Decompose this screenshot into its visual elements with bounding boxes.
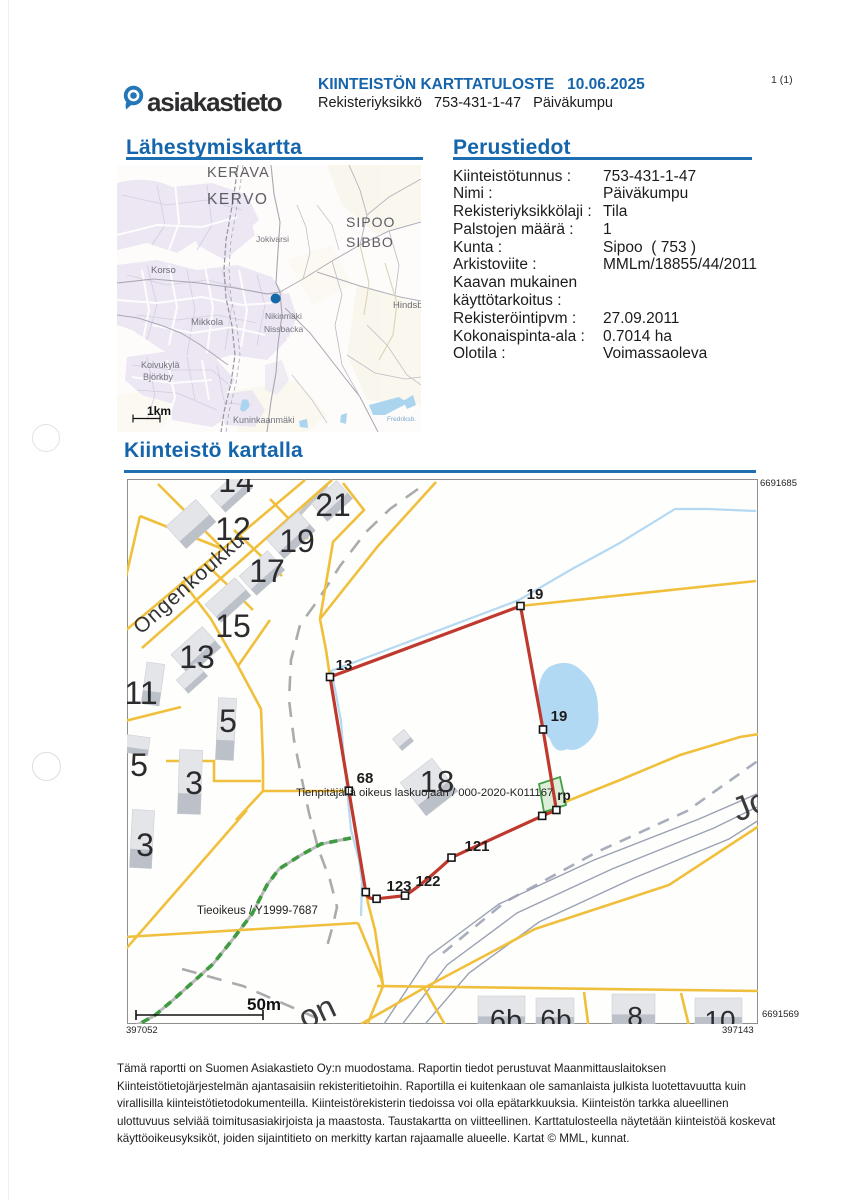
svg-text:3: 3: [136, 827, 154, 863]
svg-text:Mikkola: Mikkola: [191, 317, 224, 328]
svg-text:13: 13: [179, 639, 215, 675]
svg-text:5: 5: [219, 703, 237, 739]
svg-text:Tieoikeus / Y1999-7687: Tieoikeus / Y1999-7687: [197, 905, 318, 917]
svg-text:11: 11: [127, 675, 158, 711]
svg-text:Tienpitäjällä oikeus laskuojaa: Tienpitäjällä oikeus laskuojaan / 000-20…: [296, 787, 553, 799]
svg-text:Korso: Korso: [151, 265, 176, 276]
svg-text:SIBBO: SIBBO: [346, 234, 394, 250]
svg-text:3: 3: [185, 765, 203, 801]
svg-text:50m: 50m: [247, 995, 281, 1014]
svg-text:19: 19: [551, 708, 568, 725]
svg-text:Kuninkaanmäki: Kuninkaanmäki: [233, 415, 295, 425]
svg-text:5: 5: [130, 747, 148, 783]
svg-text:10: 10: [704, 1005, 735, 1024]
svg-text:Jokivarsi: Jokivarsi: [256, 234, 289, 244]
svg-text:15: 15: [215, 608, 251, 644]
svg-text:Nissbacka: Nissbacka: [264, 324, 303, 334]
svg-text:KERVO: KERVO: [207, 191, 269, 208]
svg-text:13: 13: [336, 657, 353, 674]
svg-text:rp: rp: [557, 788, 571, 803]
svg-text:21: 21: [315, 487, 351, 523]
svg-text:SIPOO: SIPOO: [346, 214, 395, 230]
svg-text:8: 8: [627, 1001, 643, 1024]
svg-text:Nikinmäki: Nikinmäki: [265, 311, 302, 321]
svg-text:6b: 6b: [490, 1005, 522, 1024]
svg-text:17: 17: [249, 553, 285, 589]
svg-text:122: 122: [415, 873, 440, 890]
svg-text:Hindsby: Hindsby: [393, 300, 421, 311]
svg-text:Fredriksb.: Fredriksb.: [387, 416, 416, 423]
svg-text:123: 123: [386, 878, 411, 895]
svg-text:68: 68: [357, 770, 374, 787]
svg-text:6b: 6b: [540, 1004, 571, 1024]
svg-text:19: 19: [527, 586, 544, 603]
svg-text:Björkby: Björkby: [143, 372, 174, 382]
svg-text:KERAVA: KERAVA: [207, 165, 270, 181]
svg-text:1km: 1km: [147, 404, 171, 418]
svg-text:Koivukylä: Koivukylä: [141, 360, 180, 370]
svg-text:121: 121: [464, 838, 489, 855]
svg-text:14: 14: [218, 479, 254, 499]
